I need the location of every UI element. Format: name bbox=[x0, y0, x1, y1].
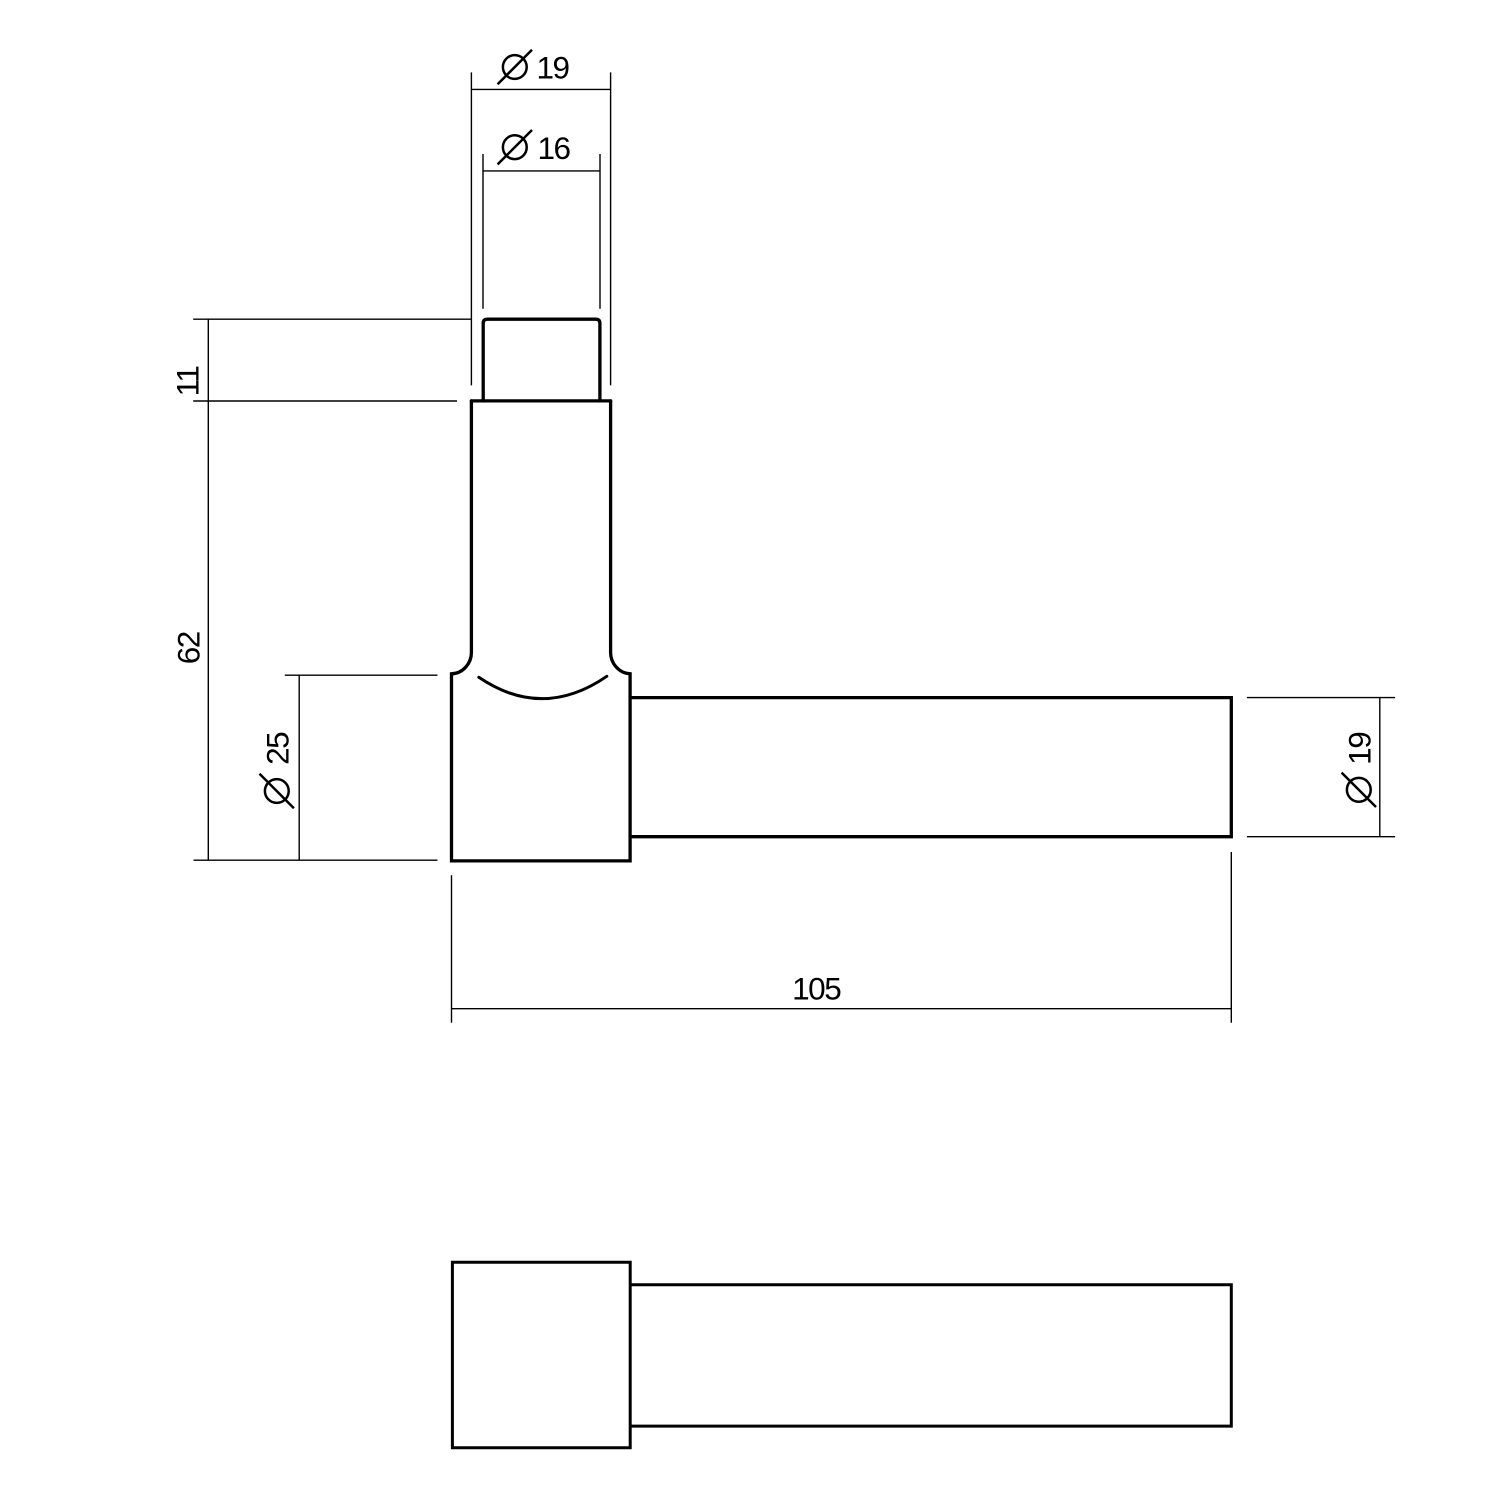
svg-text:19: 19 bbox=[1342, 732, 1378, 765]
svg-text:16: 16 bbox=[537, 130, 570, 166]
svg-text:25: 25 bbox=[260, 732, 296, 765]
svg-text:105: 105 bbox=[792, 970, 841, 1006]
svg-text:11: 11 bbox=[169, 367, 205, 397]
svg-text:19: 19 bbox=[536, 50, 569, 86]
svg-text:62: 62 bbox=[170, 632, 206, 664]
